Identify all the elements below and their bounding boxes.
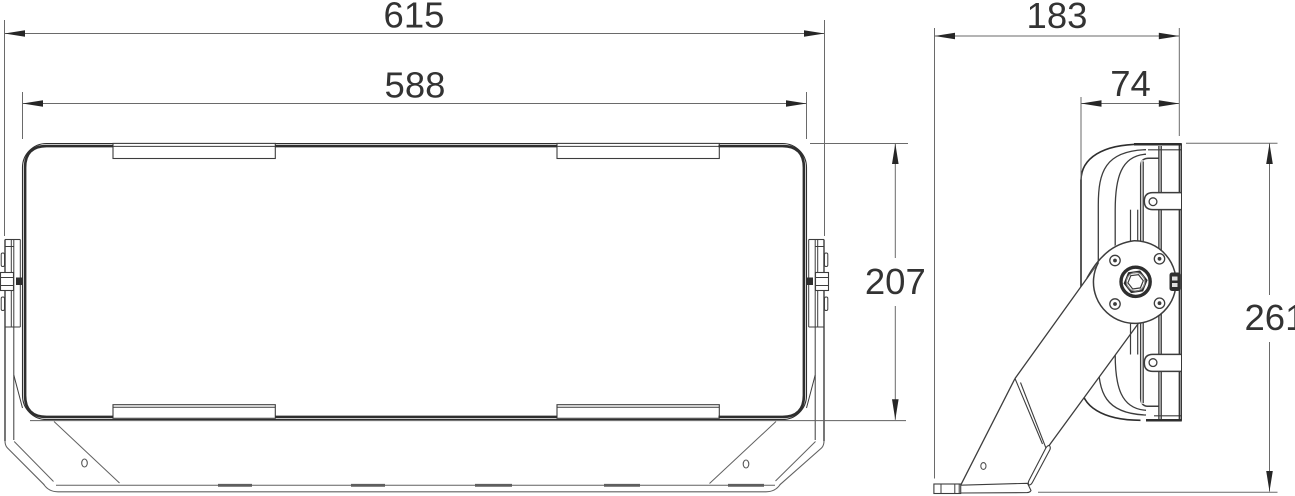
svg-text:615: 615 (384, 0, 445, 36)
svg-text:207: 207 (865, 261, 926, 302)
svg-text:183: 183 (1027, 0, 1088, 36)
svg-text:74: 74 (1110, 63, 1151, 104)
svg-text:261: 261 (1245, 297, 1295, 338)
svg-text:588: 588 (385, 65, 446, 106)
